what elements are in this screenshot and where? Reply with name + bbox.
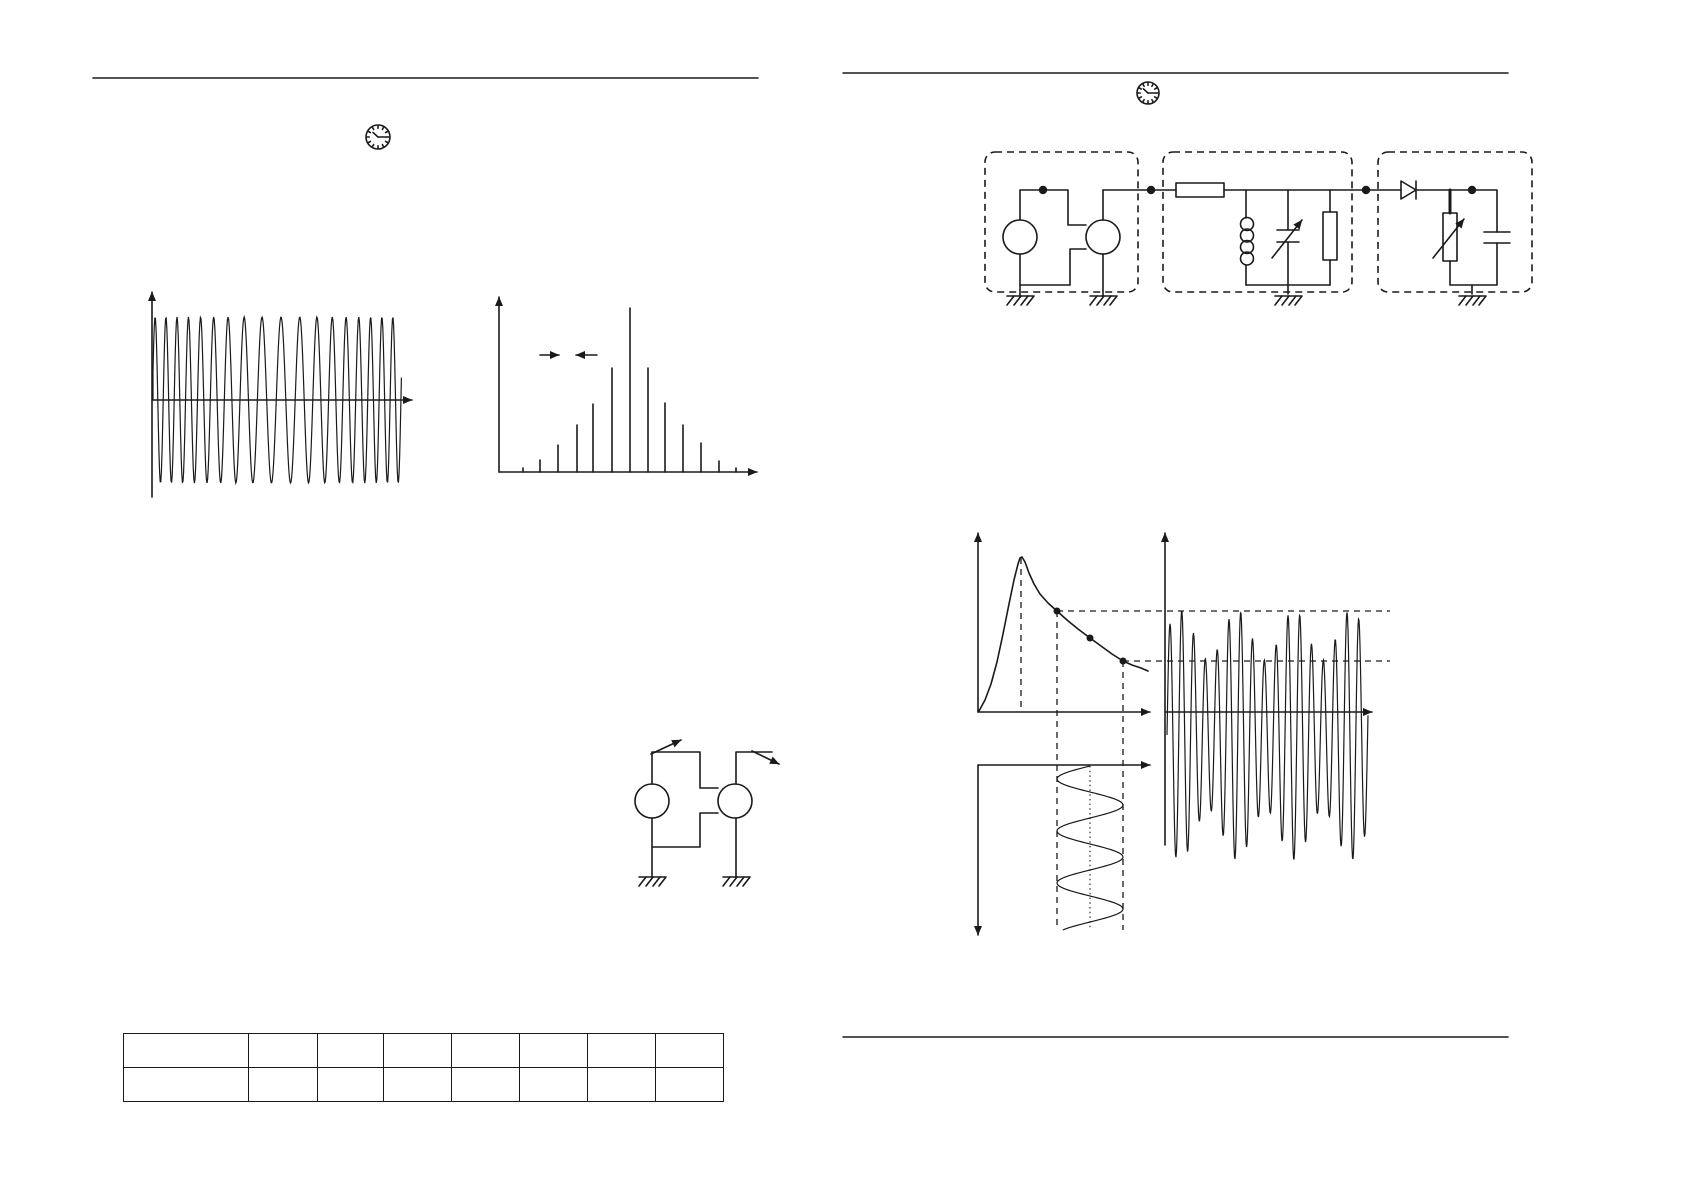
source-circle [635, 784, 669, 818]
source-circle [1003, 220, 1037, 254]
series-resistor [1176, 183, 1224, 197]
right-page [843, 73, 1532, 1037]
table-cell [520, 1034, 588, 1068]
wire [652, 813, 718, 847]
empty-data-table [123, 1033, 724, 1102]
variable-arrow-icon [1433, 219, 1464, 258]
clock-icon [366, 125, 390, 149]
clock-tick [1139, 97, 1141, 98]
table-cell [452, 1034, 520, 1068]
table-cell [384, 1068, 452, 1102]
clock-tick [386, 141, 388, 142]
table-cell [656, 1068, 724, 1102]
wire [1020, 190, 1086, 225]
table-cell [452, 1068, 520, 1102]
output-arrow-icon [752, 751, 779, 764]
stage-box-tuned-filter [1163, 152, 1352, 305]
clock-tick [1155, 97, 1157, 98]
oscillator-pair-circuit [635, 740, 779, 886]
stage-box-oscillators [985, 152, 1138, 305]
clock-tick [386, 132, 388, 133]
dashed-stage-frame [1378, 152, 1532, 292]
clock-tick [382, 145, 383, 147]
wire [652, 752, 718, 788]
ground-icon [1090, 296, 1117, 305]
table-cell [656, 1034, 724, 1068]
detector-block-diagram [985, 152, 1532, 305]
left-page [93, 78, 779, 886]
shunt-resistor [1323, 212, 1337, 260]
clock-tick [1139, 88, 1141, 89]
ground-icon [1459, 296, 1486, 305]
operating-point-dot [1054, 608, 1061, 615]
slope-detection-figure [978, 533, 1390, 935]
wire [1246, 285, 1330, 294]
interconnect-wire [1352, 186, 1401, 194]
ground-icon [1275, 296, 1302, 305]
clock-tick [373, 145, 374, 147]
clock-tick [1155, 88, 1157, 89]
fm-signal-plot [152, 292, 412, 497]
table-cell [588, 1034, 656, 1068]
node-dot [1039, 186, 1047, 194]
parameter-table [123, 1033, 724, 1102]
operating-point-dot [1087, 635, 1094, 642]
clock-hour-hand [373, 132, 378, 137]
table-cell [384, 1034, 452, 1068]
table-cell [249, 1034, 318, 1068]
stage-box-detector [1378, 152, 1532, 305]
ground-icon [1007, 296, 1034, 305]
fm-spectrum-plot [499, 297, 757, 472]
clock-tick [1152, 84, 1153, 86]
dashed-stage-frame [985, 152, 1138, 292]
clock-tick [1143, 84, 1144, 86]
diode-icon [1401, 181, 1416, 199]
table-cell [318, 1068, 384, 1102]
page-rule [843, 73, 1508, 1037]
clock-tick [1152, 100, 1153, 102]
ground-icon [639, 877, 666, 886]
clock-tick [368, 141, 370, 142]
detected-output-wave [1167, 611, 1368, 859]
clock-tick [373, 127, 374, 129]
interconnect-wire [1103, 186, 1176, 194]
wire [736, 752, 772, 784]
book-spread: const data = JSON.parse(document.getElem… [0, 0, 1684, 1190]
table-cell [588, 1068, 656, 1102]
variable-arrow-icon [1272, 220, 1302, 258]
ground-icon [723, 877, 750, 886]
clock-icon [1137, 82, 1159, 104]
node-dot [1147, 186, 1155, 194]
table-cell [124, 1068, 249, 1102]
node-dot [1362, 186, 1370, 194]
table-row [124, 1068, 724, 1102]
wire [1020, 249, 1086, 285]
source-circle [1086, 220, 1120, 254]
node-dot [1468, 186, 1476, 194]
table-row [124, 1034, 724, 1068]
table-cell [520, 1068, 588, 1102]
clock-tick [382, 127, 383, 129]
clock-tick [1143, 100, 1144, 102]
table-cell [249, 1068, 318, 1102]
clock-hour-hand [1143, 89, 1148, 93]
operating-point-dot [1120, 658, 1127, 665]
table-cell [124, 1034, 249, 1068]
clock-tick [368, 132, 370, 133]
source-circle [718, 784, 752, 818]
table-cell [318, 1034, 384, 1068]
page-artwork [0, 0, 1684, 1190]
